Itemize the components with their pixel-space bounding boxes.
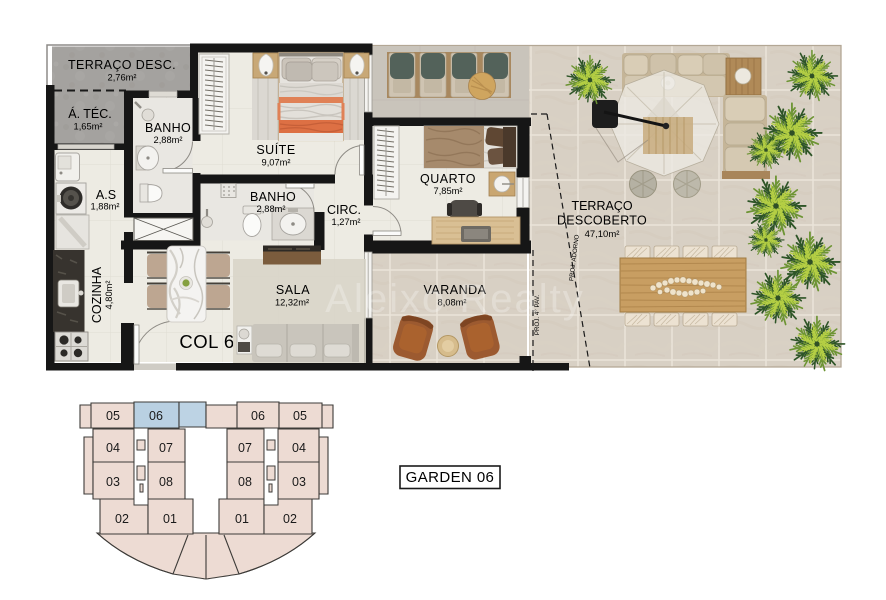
svg-text:05: 05 (106, 409, 120, 423)
svg-text:TERRAÇO DESC.: TERRAÇO DESC. (68, 58, 176, 72)
svg-text:SUÍTE: SUÍTE (256, 142, 295, 157)
svg-text:02: 02 (283, 512, 297, 526)
svg-text:08: 08 (238, 475, 252, 489)
svg-text:06: 06 (149, 409, 163, 423)
svg-text:2,88m²: 2,88m² (257, 204, 286, 214)
svg-text:9,07m²: 9,07m² (262, 158, 291, 168)
svg-text:03: 03 (292, 475, 306, 489)
svg-text:2,88m²: 2,88m² (154, 135, 183, 145)
svg-text:03: 03 (106, 475, 120, 489)
svg-text:QUARTO: QUARTO (420, 172, 476, 186)
svg-text:2,76m²: 2,76m² (108, 73, 137, 83)
svg-text:DESCOBERTO: DESCOBERTO (557, 214, 647, 228)
svg-text:Aleixo Realty: Aleixo Realty (325, 277, 584, 321)
svg-text:COZINHA: COZINHA (90, 266, 104, 323)
svg-text:1,27m²: 1,27m² (332, 217, 361, 227)
svg-text:01: 01 (235, 512, 249, 526)
svg-text:A.S: A.S (96, 188, 116, 202)
svg-text:1,88m²: 1,88m² (91, 202, 120, 212)
svg-text:4,80m²: 4,80m² (104, 281, 114, 310)
svg-text:01: 01 (163, 512, 177, 526)
svg-text:04: 04 (106, 441, 120, 455)
svg-text:Á. TÉC.: Á. TÉC. (68, 106, 112, 121)
svg-text:1,65m²: 1,65m² (74, 122, 103, 132)
svg-text:07: 07 (238, 441, 252, 455)
svg-text:BANHO: BANHO (250, 190, 296, 204)
svg-text:TERRAÇO: TERRAÇO (571, 199, 632, 213)
svg-text:12,32m²: 12,32m² (275, 298, 309, 308)
svg-text:7,85m²: 7,85m² (434, 186, 463, 196)
svg-text:04: 04 (292, 441, 306, 455)
svg-text:05: 05 (293, 409, 307, 423)
svg-text:BANHO: BANHO (145, 121, 191, 135)
svg-text:07: 07 (159, 441, 173, 455)
svg-text:08: 08 (159, 475, 173, 489)
svg-text:CIRC.: CIRC. (327, 203, 361, 217)
svg-text:06: 06 (251, 409, 265, 423)
svg-text:02: 02 (115, 512, 129, 526)
svg-text:SALA: SALA (276, 283, 310, 297)
svg-text:COL 6: COL 6 (179, 331, 234, 352)
svg-text:47,10m²: 47,10m² (585, 229, 620, 240)
svg-text:GARDEN 06: GARDEN 06 (406, 469, 495, 486)
